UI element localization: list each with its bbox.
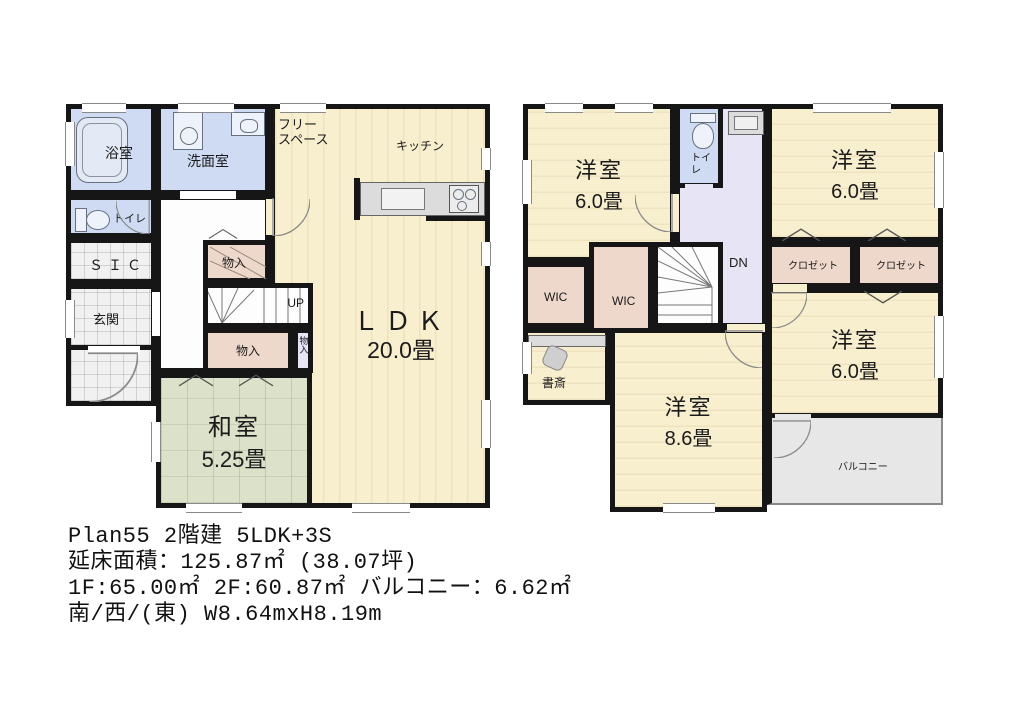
room-sic: ＳＩＣ (66, 238, 156, 284)
room-wic-1: WIC (523, 262, 589, 328)
stairs-2f (653, 242, 723, 328)
window (65, 300, 75, 338)
stairs-up-label: UP (287, 297, 304, 311)
window (151, 422, 161, 462)
room-bed1: 洋室 6.0畳 (523, 104, 675, 262)
study-desk-icon (528, 335, 606, 347)
caption-line-1: Plan55 2階建 5LDK+3S (68, 524, 708, 550)
plan-caption: Plan55 2階建 5LDK+3S 延床面積：125.87㎡ (38.07坪)… (68, 524, 708, 628)
window (352, 503, 410, 513)
entrance-door-arc (88, 352, 138, 402)
window (280, 103, 326, 113)
bifold-mark (178, 374, 214, 387)
kitchen-counter-icon (360, 182, 485, 216)
room-washitsu: 和室 5.25畳 (156, 373, 312, 508)
door-arc (773, 420, 811, 458)
bifold-mark (238, 374, 274, 387)
caption-line-2: 延床面積：125.87㎡ (38.07坪) (68, 550, 708, 576)
caption-line-4: 南/西/(東) W8.64mxH8.19m (68, 602, 708, 628)
door-arc (116, 200, 150, 234)
hall-washbasin-icon (728, 111, 764, 135)
study-chair-icon (540, 343, 569, 372)
storage-lower-label: 物入 (236, 345, 260, 359)
floor-1-plan: 物入 UP 物入 物入 和室 5.25畳 浴室 トイレ (66, 104, 490, 512)
door-gap (481, 148, 491, 170)
bifold-mark (208, 228, 238, 240)
ldk-size: 20.0畳 (367, 337, 435, 363)
opening (180, 191, 236, 199)
door-arc (635, 194, 673, 232)
window (615, 103, 653, 113)
room-bath: 浴室 (66, 104, 156, 195)
window (186, 503, 242, 513)
toilet-2f-label: トイレ (691, 153, 718, 176)
room-bed2: 洋室 6.0畳 (767, 104, 943, 242)
toilet-tank-icon (690, 113, 716, 123)
sic-label: ＳＩＣ (89, 257, 146, 273)
room-genkan: 玄関 (66, 284, 156, 350)
bed1-name: 洋室 (575, 153, 623, 185)
storage-side-label: 物入 (298, 336, 308, 354)
window (65, 122, 75, 166)
door-arc (771, 292, 807, 328)
room-toilet-2f: トイレ (675, 104, 723, 188)
window (178, 103, 234, 113)
window (82, 103, 126, 113)
kitchen-sink-icon (381, 188, 425, 210)
bed3-size: 6.0畳 (831, 355, 879, 384)
door-gap (481, 242, 491, 266)
stairs-1f: UP (203, 283, 313, 328)
kitchen-stove-icon (449, 185, 479, 213)
balcony-label: バルコニー (838, 462, 888, 474)
washitsu-name: 和室 (208, 407, 260, 442)
genkan-label: 玄関 (93, 313, 119, 328)
room-study: 書斎 (523, 328, 610, 405)
stairs-dn-label: DN (729, 256, 748, 271)
room-closet-1: クロゼット (767, 242, 855, 288)
room-closet-2: クロゼット (855, 242, 943, 288)
bed1-size: 6.0畳 (575, 185, 623, 214)
toilet-icon (692, 123, 714, 149)
bed4-name: 洋室 (664, 390, 712, 422)
window (934, 316, 944, 378)
ldk-name: ＬＤＫ (353, 307, 449, 337)
floor-2-plan: 洋室 6.0畳 トイレ 洋室 6.0畳 クロゼット クロゼット WIC (523, 104, 943, 512)
opening (773, 284, 807, 292)
door-arc (725, 330, 763, 368)
door-arc (272, 198, 310, 236)
washbasin-icon (231, 112, 265, 136)
bifold-mark (863, 290, 903, 304)
closet2-label: クロゼット (876, 261, 926, 273)
ldk-label: ＬＤＫ 20.0畳 (318, 302, 484, 368)
opening (685, 184, 713, 192)
kitchen-label: キッチン (396, 140, 444, 154)
bed4-size: 8.6畳 (665, 422, 713, 451)
bed2-size: 6.0畳 (831, 175, 879, 204)
closet1-label: クロゼット (788, 261, 838, 273)
wic1-label: WIC (544, 291, 567, 305)
room-storage-side: 物入 (293, 328, 313, 373)
bifold-mark (781, 228, 821, 242)
washroom-label: 洗面室 (187, 153, 229, 169)
washitsu-size: 5.25畳 (202, 442, 267, 474)
caption-line-3: 1F:65.00㎡ 2F:60.87㎡ バルコニー：6.62㎡ (68, 576, 708, 602)
bath-label: 浴室 (105, 145, 133, 161)
window (934, 152, 944, 208)
storage-upper-label: 物入 (222, 257, 246, 271)
window (663, 503, 715, 513)
opening (152, 292, 160, 336)
bed3-name: 洋室 (831, 323, 879, 355)
kitchen-wall-return (426, 216, 485, 221)
floorplan-canvas: 物入 UP 物入 物入 和室 5.25畳 浴室 トイレ (0, 0, 1024, 724)
room-storage-lower: 物入 (203, 328, 293, 373)
free-space-label: フリー スペース (278, 118, 328, 148)
window (522, 342, 532, 374)
window (813, 103, 891, 113)
bed2-name: 洋室 (831, 143, 879, 175)
room-storage-upper: 物入 (203, 240, 270, 283)
washing-machine-icon (173, 112, 203, 150)
bifold-mark (867, 228, 907, 242)
window (522, 160, 532, 204)
wic2-label: WIC (612, 295, 635, 309)
study-label: 書斎 (542, 377, 566, 391)
window (545, 103, 583, 113)
toilet-icon (86, 210, 110, 230)
stairs-icon (658, 247, 718, 323)
room-washroom: 洗面室 (156, 104, 270, 195)
window (481, 400, 491, 448)
